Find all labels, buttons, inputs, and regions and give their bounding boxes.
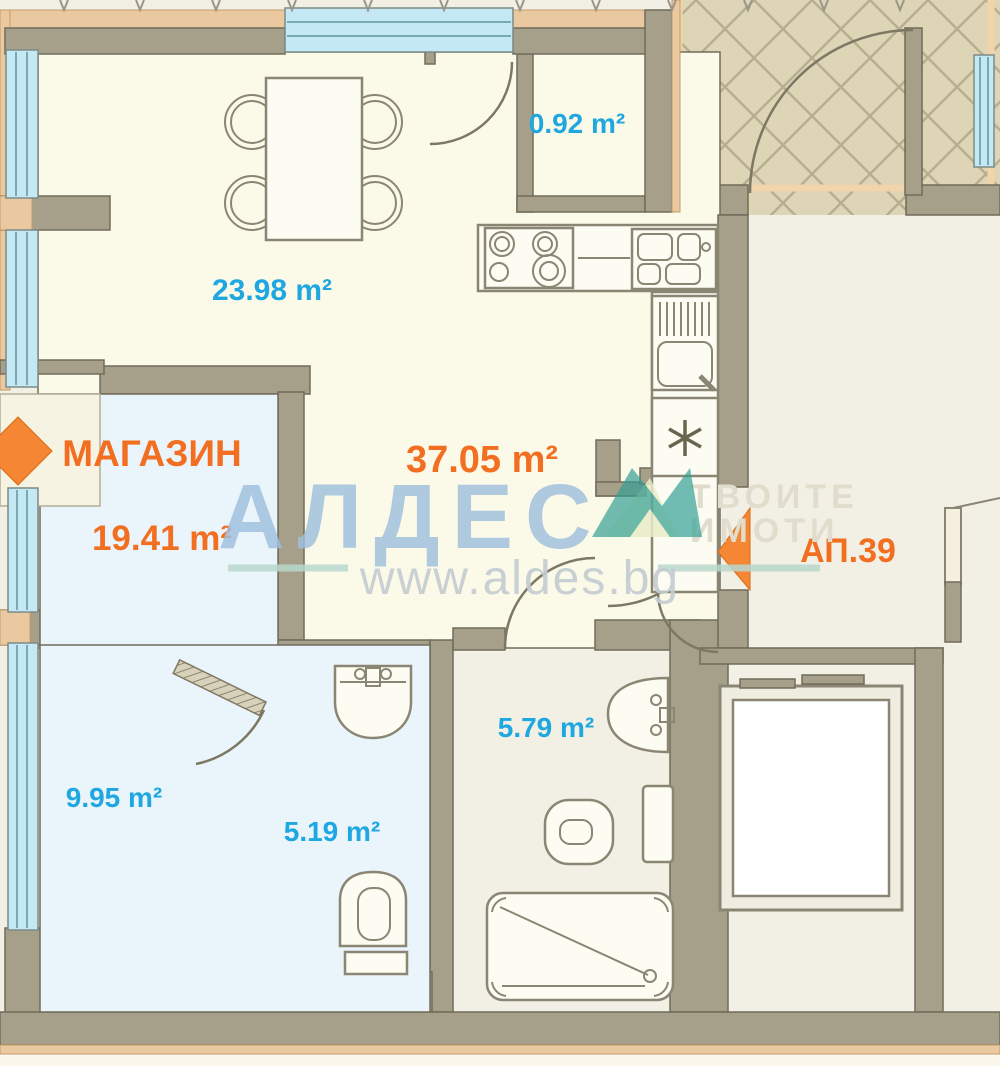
bathtub-icon — [487, 893, 673, 1000]
bathroom-area-label: 5.79 m² — [498, 712, 595, 743]
watermark-tagline-1: ТВОИТЕ — [690, 478, 859, 516]
floor-plan-canvas: 23.98 m² 0.92 m² 37.05 m² МАГАЗИН 19.41 … — [0, 0, 1000, 1066]
watermark-url: www.aldes.bg — [359, 552, 680, 605]
stove-icon — [485, 228, 573, 288]
asterisk-symbol-icon — [652, 398, 718, 476]
floor-plan: 23.98 m² 0.92 m² 37.05 m² МАГАЗИН 19.41 … — [0, 0, 1000, 1066]
stairwell-door-leaf — [905, 28, 922, 195]
elevator-icon — [720, 675, 902, 910]
kitchen-sink-icon — [632, 229, 716, 289]
bottom-margin — [0, 1053, 1000, 1066]
shop-backroom-area-label: 9.95 m² — [66, 782, 163, 813]
shop-washbasin-icon — [335, 666, 411, 738]
living-area-label: 23.98 m² — [212, 274, 332, 307]
stairwell-window — [974, 55, 994, 167]
dish-drainer-icon — [652, 296, 718, 390]
shop-wc-area-label: 5.19 m² — [284, 816, 381, 847]
watermark-tagline-2: ИМОТИ — [690, 512, 839, 550]
stairwell-area — [672, 0, 1000, 215]
shop-name-label: МАГАЗИН — [62, 433, 241, 474]
living-window — [285, 8, 513, 52]
closet-area-label: 0.92 m² — [529, 108, 626, 139]
shop-toilet-icon — [340, 872, 407, 974]
shop-area-label: 19.41 m² — [92, 519, 232, 558]
